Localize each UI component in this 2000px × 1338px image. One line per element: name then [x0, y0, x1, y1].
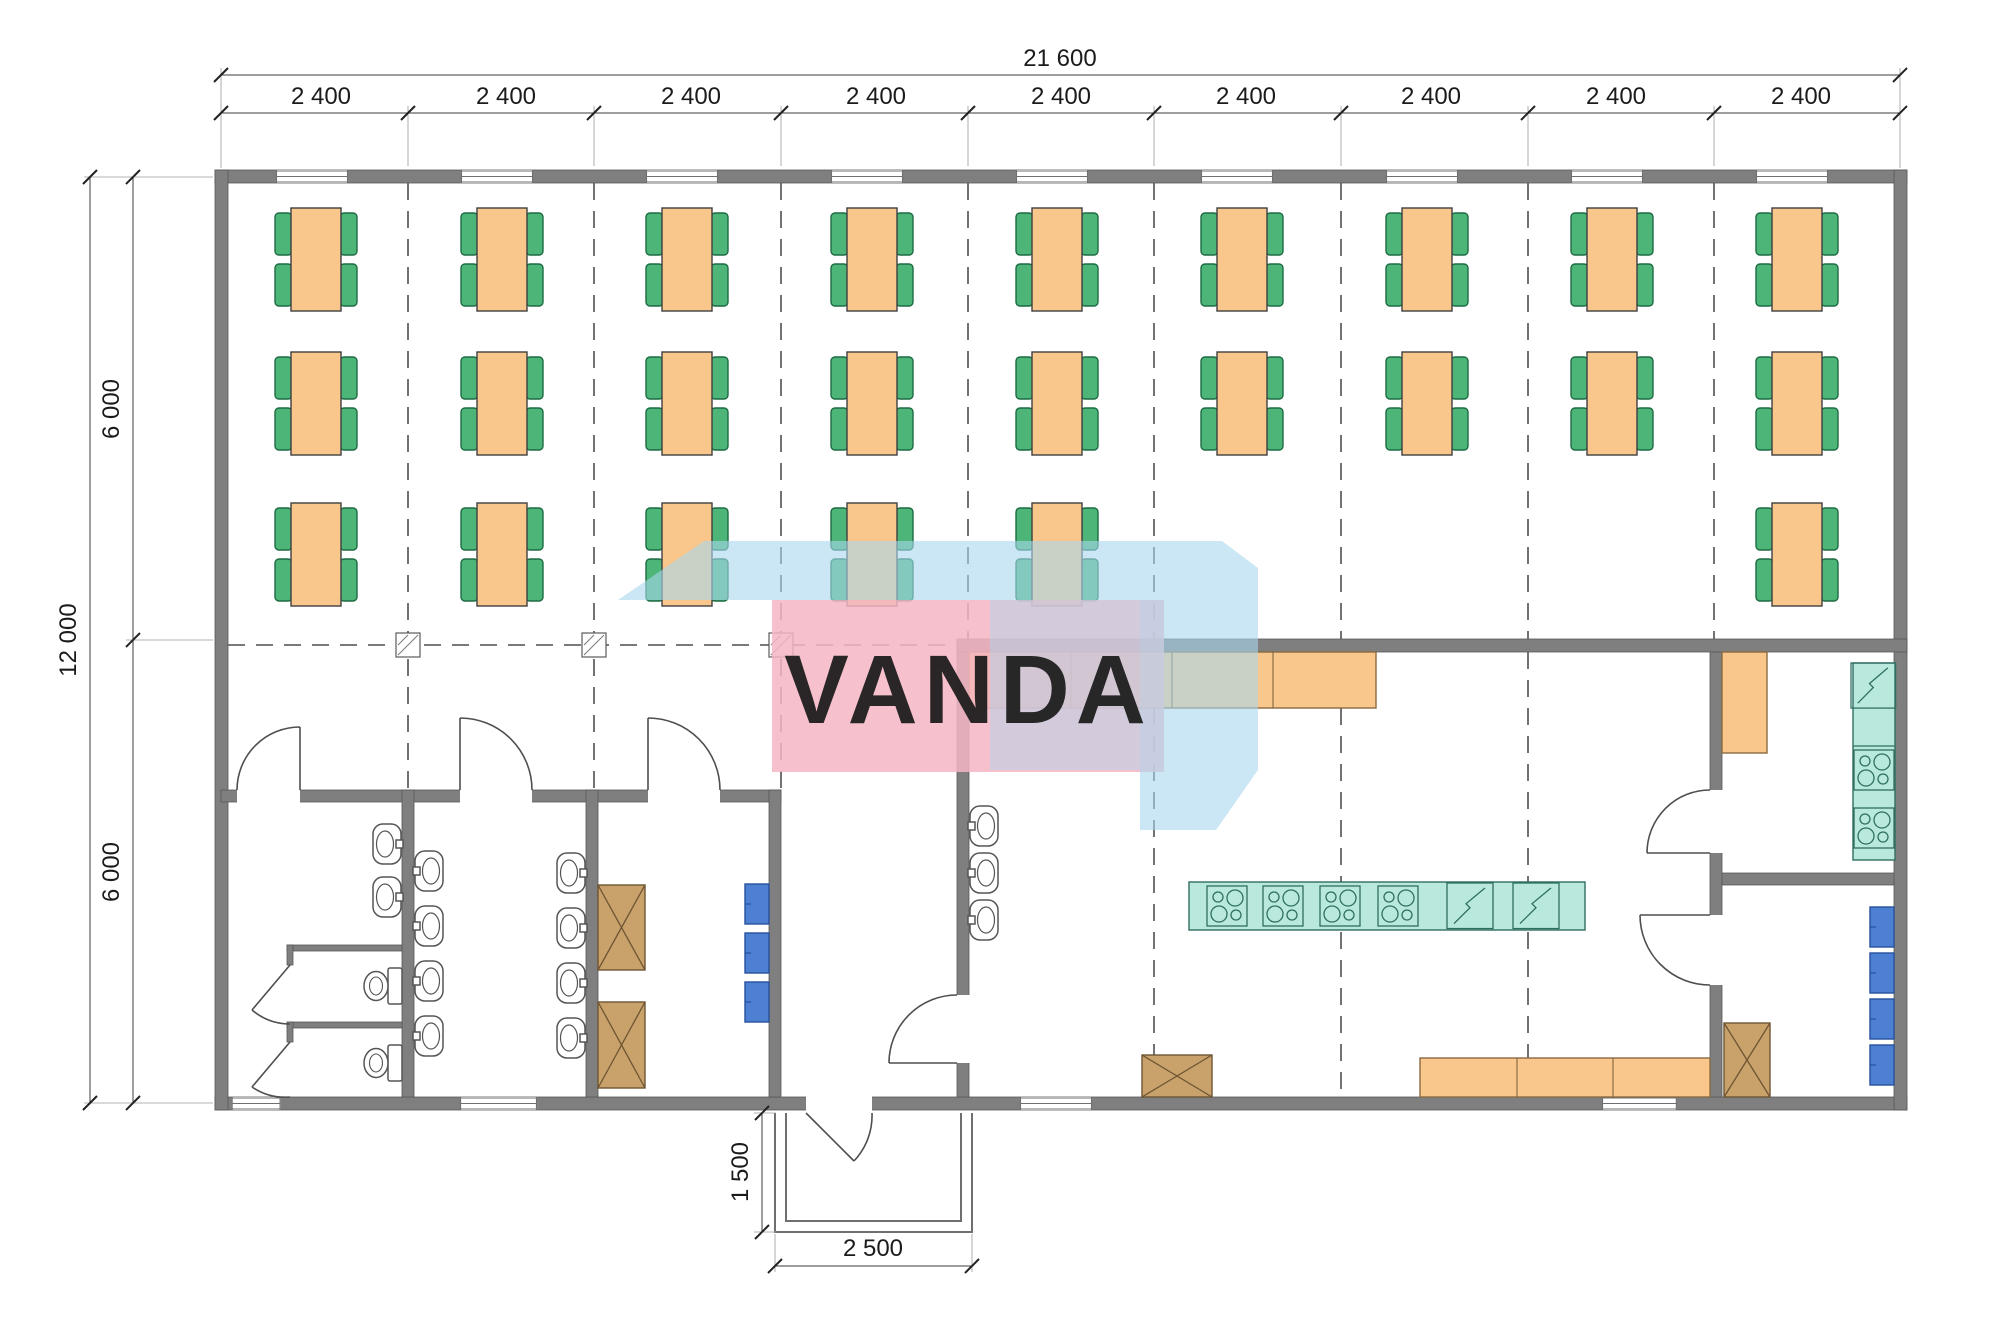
dim-porch-width: 2 500 — [843, 1235, 903, 1262]
wall-a — [402, 790, 414, 1097]
floor-plan-drawing: 21 600 2 400 2 400 2 400 2 400 2 400 2 4… — [0, 0, 2000, 1338]
wash-basin — [413, 961, 443, 1001]
crossed-cabinet — [1142, 1055, 1212, 1097]
toilet-stall-stub — [287, 1022, 293, 1042]
wall-right-rooms — [1722, 873, 1894, 885]
table-with-chairs — [646, 352, 728, 455]
dim-bay: 2 400 — [1216, 83, 1276, 110]
door-washroom — [460, 718, 532, 790]
wash-basin — [968, 806, 998, 846]
window — [460, 1097, 537, 1110]
dim-left-lower: 6 000 — [98, 842, 125, 902]
wash-basin — [373, 877, 403, 917]
table-with-chairs — [1756, 503, 1838, 606]
window — [232, 1097, 280, 1110]
wash-basin — [557, 963, 587, 1003]
wash-basin — [968, 900, 998, 940]
grid-marker — [582, 633, 606, 657]
door-sanitary-room — [237, 727, 300, 790]
door-main-entrance — [806, 1113, 872, 1161]
table-with-chairs — [461, 208, 543, 311]
wash-basin — [413, 906, 443, 946]
toilet — [364, 968, 402, 1004]
right-wall-equipment — [1851, 663, 1896, 860]
wash-basin — [968, 853, 998, 893]
dim-left-total: 12 000 — [55, 603, 82, 676]
blue-locker — [745, 982, 769, 1022]
window — [461, 170, 533, 183]
window — [276, 170, 348, 183]
window — [646, 170, 718, 183]
counter-upper-room — [1722, 652, 1767, 753]
table-with-chairs — [1756, 208, 1838, 311]
table-with-chairs — [831, 352, 913, 455]
floor-plan-canvas: 21 600 2 400 2 400 2 400 2 400 2 400 2 4… — [0, 0, 2000, 1338]
wall-c — [769, 790, 781, 1097]
toilet — [364, 1045, 402, 1081]
table-with-chairs — [461, 352, 543, 455]
entrance-porch — [775, 1113, 972, 1232]
wash-basin — [413, 851, 443, 891]
dim-bay: 2 400 — [1031, 83, 1091, 110]
toilet-stall-stub — [287, 945, 293, 965]
crossed-cabinet — [1724, 1023, 1770, 1097]
blue-locker — [1870, 907, 1894, 947]
table-with-chairs — [1571, 208, 1653, 311]
wash-basin — [413, 1016, 443, 1056]
window — [1756, 170, 1828, 183]
dim-left-upper: 6 000 — [98, 379, 125, 439]
wall-b — [586, 790, 598, 1097]
blue-locker — [745, 884, 769, 924]
table-with-chairs — [1016, 352, 1098, 455]
wash-basin — [373, 824, 403, 864]
door-entrance-kitchen — [889, 995, 957, 1063]
blue-locker — [1870, 953, 1894, 993]
dim-bay: 2 400 — [476, 83, 536, 110]
crossed-cabinet — [598, 1002, 645, 1088]
table-with-chairs — [275, 503, 357, 606]
dim-bay: 2 400 — [1401, 83, 1461, 110]
grid-marker — [396, 633, 420, 657]
table-with-chairs — [646, 208, 728, 311]
dim-bay: 2 400 — [1771, 83, 1831, 110]
dim-bay: 2 400 — [291, 83, 351, 110]
table-with-chairs — [275, 352, 357, 455]
dim-bay: 2 400 — [1586, 83, 1646, 110]
table-with-chairs — [1201, 352, 1283, 455]
door-storage-room — [648, 718, 720, 790]
wash-basin — [557, 908, 587, 948]
exterior-wall-left — [215, 170, 228, 1110]
window — [1016, 170, 1088, 183]
window — [831, 170, 903, 183]
table-with-chairs — [1756, 352, 1838, 455]
table-with-chairs — [1201, 208, 1283, 311]
blue-locker — [745, 933, 769, 973]
table-with-chairs — [1571, 352, 1653, 455]
table-with-chairs — [1016, 208, 1098, 311]
watermark-blue-top — [618, 541, 1222, 600]
table-with-chairs — [831, 208, 913, 311]
cooking-island — [1189, 882, 1585, 930]
wash-basin — [557, 1018, 587, 1058]
table-with-chairs — [1386, 208, 1468, 311]
watermark-text: VANDA — [784, 635, 1152, 744]
window — [1571, 170, 1643, 183]
door-kitchen-upper-room — [1647, 790, 1710, 853]
blue-locker — [1870, 1045, 1894, 1085]
dim-bay: 2 400 — [661, 83, 721, 110]
toilet-stall-wall — [287, 945, 402, 951]
window — [1201, 170, 1273, 183]
window — [1020, 1097, 1092, 1110]
sanitary-fixtures — [364, 806, 998, 1081]
table-with-chairs — [1386, 352, 1468, 455]
bottom-counter — [1420, 1058, 1710, 1097]
window — [1602, 1097, 1677, 1110]
blue-locker — [1870, 999, 1894, 1039]
door-toilet-stall-1 — [252, 965, 290, 1024]
toilet-stall-wall — [287, 1022, 402, 1028]
crossed-cabinet — [598, 885, 645, 970]
wall-kitchen-rooms — [1710, 652, 1722, 1097]
door-kitchen-lower-room — [1640, 915, 1710, 985]
dim-bay: 2 400 — [846, 83, 906, 110]
table-with-chairs — [275, 208, 357, 311]
wash-basin — [557, 853, 587, 893]
table-with-chairs — [461, 503, 543, 606]
door-toilet-stall-2 — [252, 1042, 290, 1097]
dim-porch-depth: 1 500 — [727, 1142, 754, 1202]
dim-top-total: 21 600 — [1023, 45, 1096, 72]
window — [1386, 170, 1458, 183]
watermark-logo: VANDA — [618, 541, 1258, 830]
